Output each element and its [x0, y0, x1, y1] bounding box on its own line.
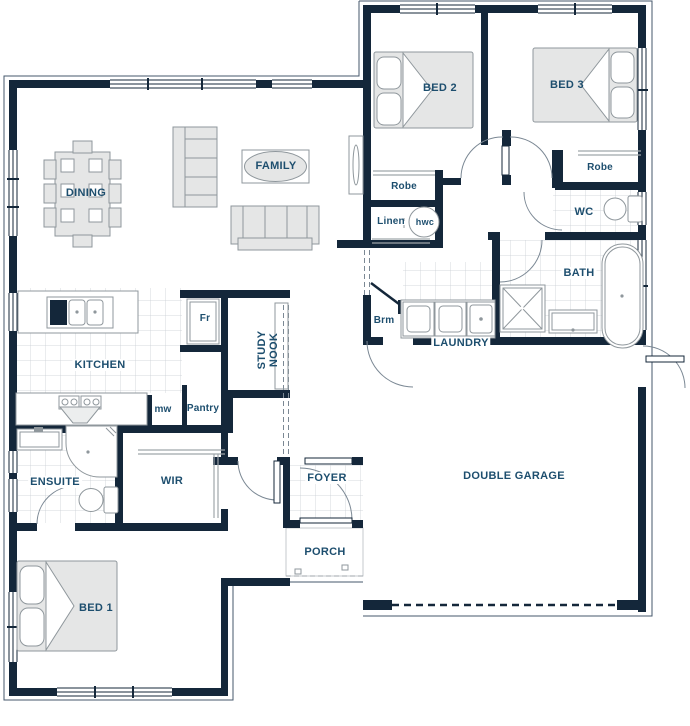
room-label-foyer: FOYER: [305, 472, 348, 484]
room-label-wir: WIR: [161, 475, 183, 487]
room-label-ensuite: ENSUITE: [28, 476, 82, 488]
sofa-vertical: [173, 127, 217, 207]
room-label-bed3: BED 3: [550, 79, 584, 91]
foyer-inner-door-leaf: [305, 458, 352, 464]
window-dining: [7, 150, 19, 236]
kitchen-bench: [16, 393, 147, 425]
room-label-kitchen: KITCHEN: [73, 359, 128, 371]
bed3-furniture: [533, 48, 637, 122]
bed-door-leaf: [502, 146, 509, 175]
room-label-wc: WC: [575, 206, 594, 218]
window-bed2: [400, 3, 475, 15]
window-ensuite-a: [8, 451, 18, 473]
garage-internal-door-arc: [367, 341, 413, 387]
room-label-bath: BATH: [562, 267, 597, 279]
hall-door-leaf: [274, 461, 280, 503]
room-label-porch: PORCH: [304, 546, 345, 558]
window-bed3-right: [636, 48, 648, 130]
room-label-microwave: mw: [154, 404, 171, 416]
window-kitchen: [8, 293, 18, 331]
sofa-horizontal: [231, 206, 319, 250]
room-label-linen: Linen: [377, 216, 405, 228]
room-label-pantry: Pantry: [187, 403, 219, 415]
broom-door: [371, 283, 399, 304]
side-door-opening: [637, 345, 647, 387]
room-label-garage: DOUBLE GARAGE: [463, 470, 565, 482]
front-door-leaf: [300, 518, 352, 523]
laundry-bench: [401, 300, 495, 338]
window-top-family: [272, 79, 312, 89]
room-label-family: FAMILY: [255, 160, 296, 172]
room-label-bed1: BED 1: [79, 602, 113, 614]
window-bed3-top: [538, 3, 612, 15]
bed3-door-arc: [510, 137, 552, 178]
room-label-bed2: BED 2: [423, 82, 457, 94]
floor-plan: DINING FAMILY KITCHEN BED 2 BED 3 BED 1 …: [0, 0, 690, 726]
room-label-dining: DINING: [66, 187, 106, 199]
room-label-study-nook: STUDYNOOK: [256, 331, 280, 370]
tv-unit: [349, 136, 363, 194]
window-ensuite-b: [8, 479, 18, 512]
room-label-robe-bed3: Robe: [587, 162, 613, 174]
room-label-laundry: LAUNDRY: [431, 337, 490, 349]
room-label-broom: Brm: [374, 315, 395, 327]
side-door-leaf: [646, 356, 684, 362]
kitchen-island: [18, 291, 138, 333]
side-door-arc: [643, 346, 685, 388]
hall-door-arc: [238, 461, 277, 500]
room-label-robe-bed2: Robe: [391, 181, 417, 193]
window-bed1-bottom: [57, 686, 172, 698]
room-label-fridge: Fr: [198, 313, 212, 325]
window-top-living: [110, 78, 256, 90]
room-label-hwc: hwc: [416, 216, 434, 228]
